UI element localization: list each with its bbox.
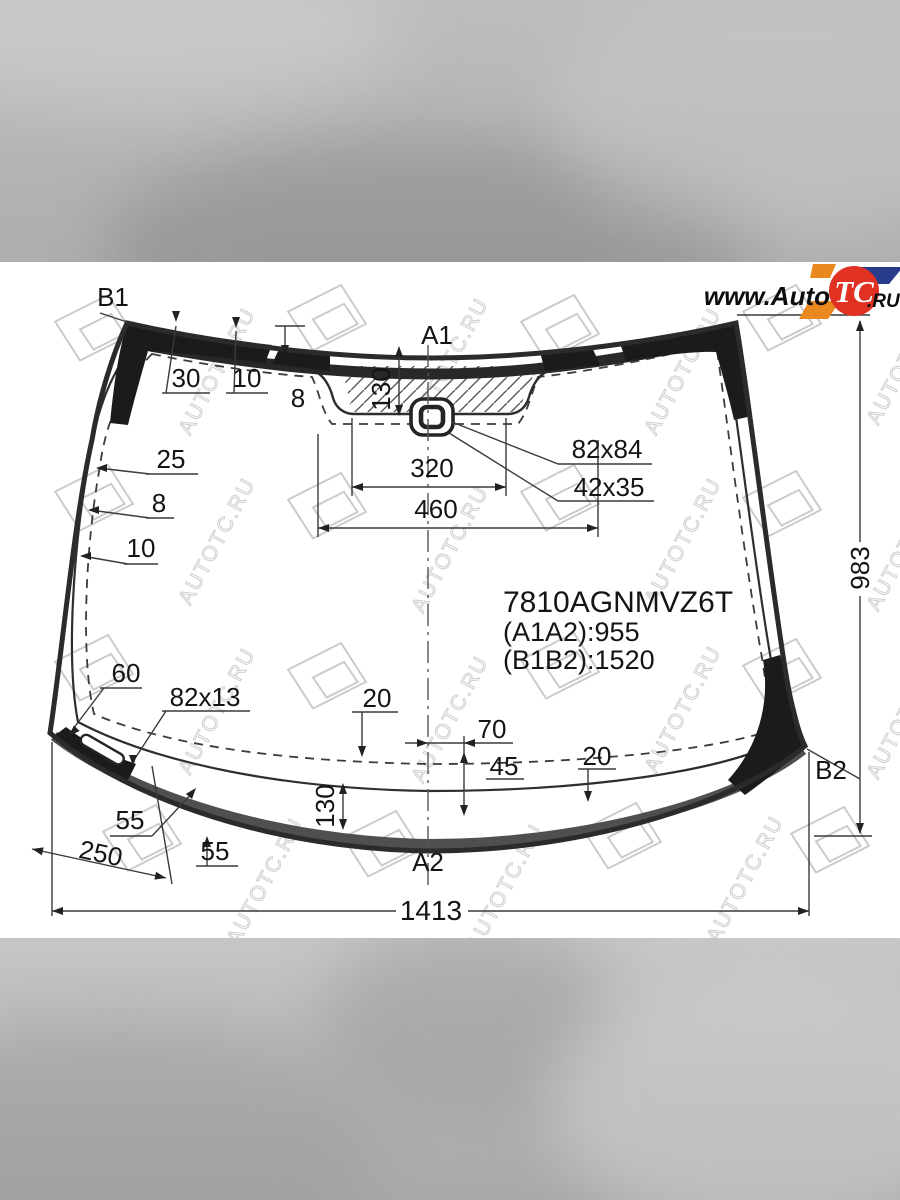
dim-right-983: 983 [845, 546, 875, 589]
logo-url-prefix: www.Auto [704, 281, 830, 311]
mirror-button-inner [421, 407, 443, 427]
dim-mirror-320: 320 [410, 453, 453, 483]
dim-total-width-1413: 1413 [400, 895, 462, 926]
dim-bottom-45: 45 [490, 751, 519, 781]
dim-left-8: 8 [152, 488, 166, 518]
dim-bottom-20-right: 20 [583, 741, 612, 771]
dim-top-8: 8 [291, 383, 305, 413]
part-number: 7810AGNMVZ6T [503, 586, 733, 619]
dim-bottom-20-left: 20 [363, 683, 392, 713]
part-length-a1a2: (A1A2):955 [503, 617, 640, 647]
dim-mirror-130: 130 [366, 367, 396, 410]
dim-bottom-55-right: 55 [201, 836, 230, 866]
corner-label-a2: A2 [412, 847, 444, 877]
dim-button-outer-82x84: 82x84 [572, 434, 643, 464]
dim-bl-60: 60 [112, 658, 141, 688]
screenshot-canvas: AUTOTC.RU [0, 0, 900, 1200]
dim-left-10: 10 [127, 533, 156, 563]
dim-top-30: 30 [172, 363, 201, 393]
bottom-blurred-bar [0, 920, 900, 1200]
dim-left-25: 25 [157, 444, 186, 474]
corner-label-b2: B2 [815, 755, 847, 785]
corner-label-a1: A1 [421, 320, 453, 350]
dim-button-inner-42x35: 42x35 [574, 472, 645, 502]
dim-mirror-460: 460 [414, 494, 457, 524]
dim-bottom-130: 130 [310, 784, 340, 827]
dim-bottom-55-left: 55 [116, 805, 145, 835]
dim-top-10: 10 [233, 363, 262, 393]
corner-label-b1: B1 [97, 282, 129, 312]
dim-bottom-70: 70 [478, 714, 507, 744]
windshield-diagram: AUTOTC.RU [0, 0, 900, 1200]
part-length-b1b2: (B1B2):1520 [503, 645, 655, 675]
logo-url-suffix: .RU [867, 291, 900, 312]
dim-bl-82x13: 82x13 [170, 682, 241, 712]
